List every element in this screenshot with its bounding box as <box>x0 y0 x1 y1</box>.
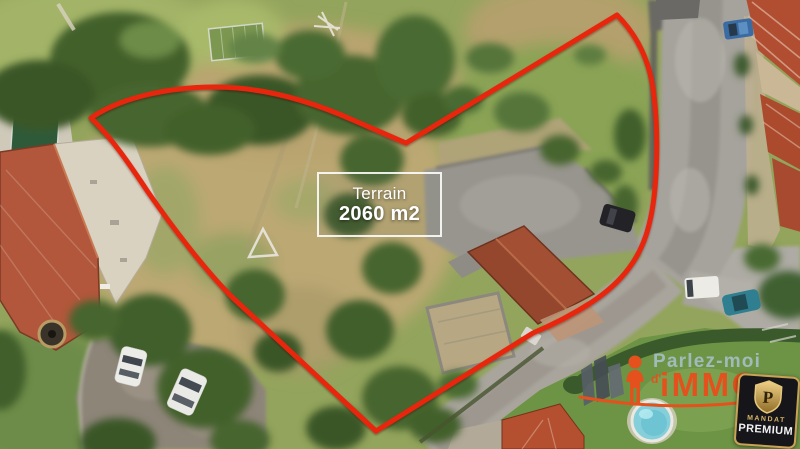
real-estate-aerial-listing: Terrain 2060 m2 Parlez-moi d' iMMO P MAN… <box>0 0 800 449</box>
round-pool <box>627 398 677 444</box>
mandat-premium-badge: P MANDAT PREMIUM <box>734 373 800 449</box>
badge-premium-label: PREMIUM <box>738 422 793 438</box>
shield-letter: P <box>762 388 774 408</box>
terrain-area-value: 2060 m2 <box>339 203 420 225</box>
terrain-label-title: Terrain <box>352 184 406 203</box>
terrain-area-annotation: Terrain 2060 m2 <box>317 172 442 237</box>
white-van-road <box>684 276 719 299</box>
shield-icon: P <box>751 378 785 416</box>
